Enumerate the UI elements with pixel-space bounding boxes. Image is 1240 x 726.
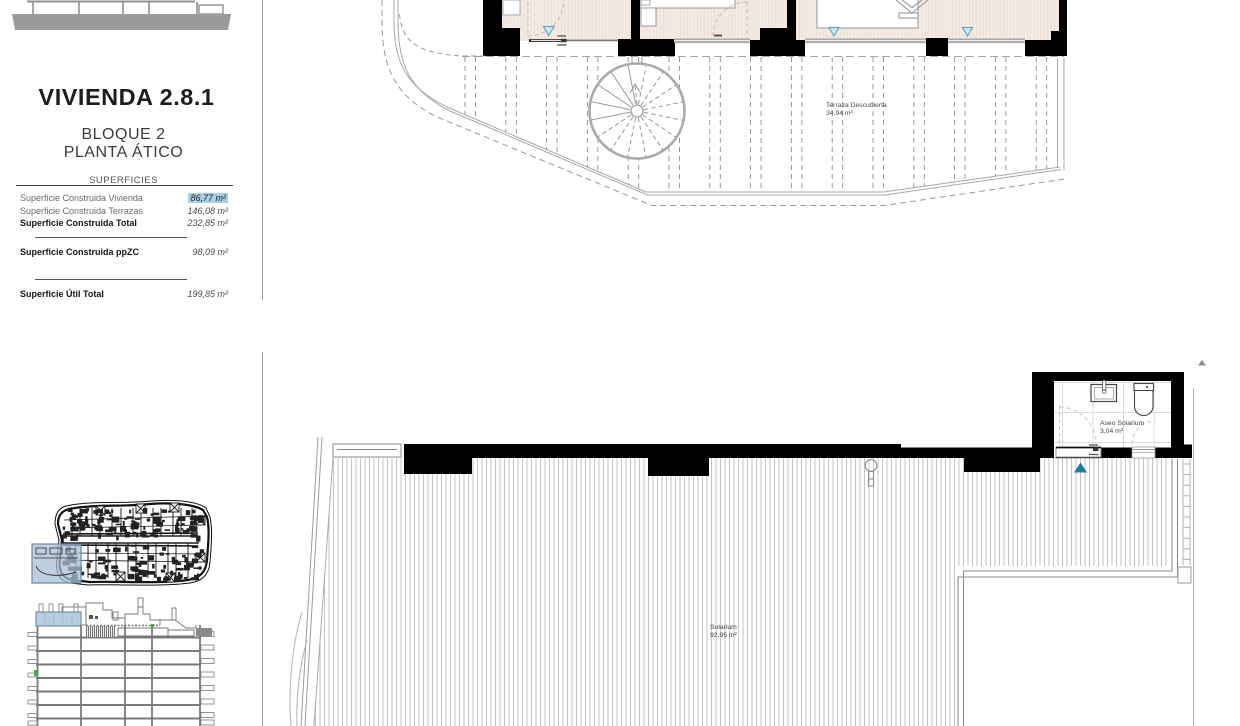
svg-text:3,04 m²: 3,04 m² xyxy=(1100,428,1124,435)
svg-text:34,94 m²: 34,94 m² xyxy=(826,110,854,117)
svg-text:Solarium: Solarium xyxy=(710,624,737,631)
svg-text:92,95 m²: 92,95 m² xyxy=(710,632,738,639)
svg-text:Aseo Solarium: Aseo Solarium xyxy=(1100,420,1145,427)
svg-text:Terraza Descubierta: Terraza Descubierta xyxy=(826,102,887,109)
